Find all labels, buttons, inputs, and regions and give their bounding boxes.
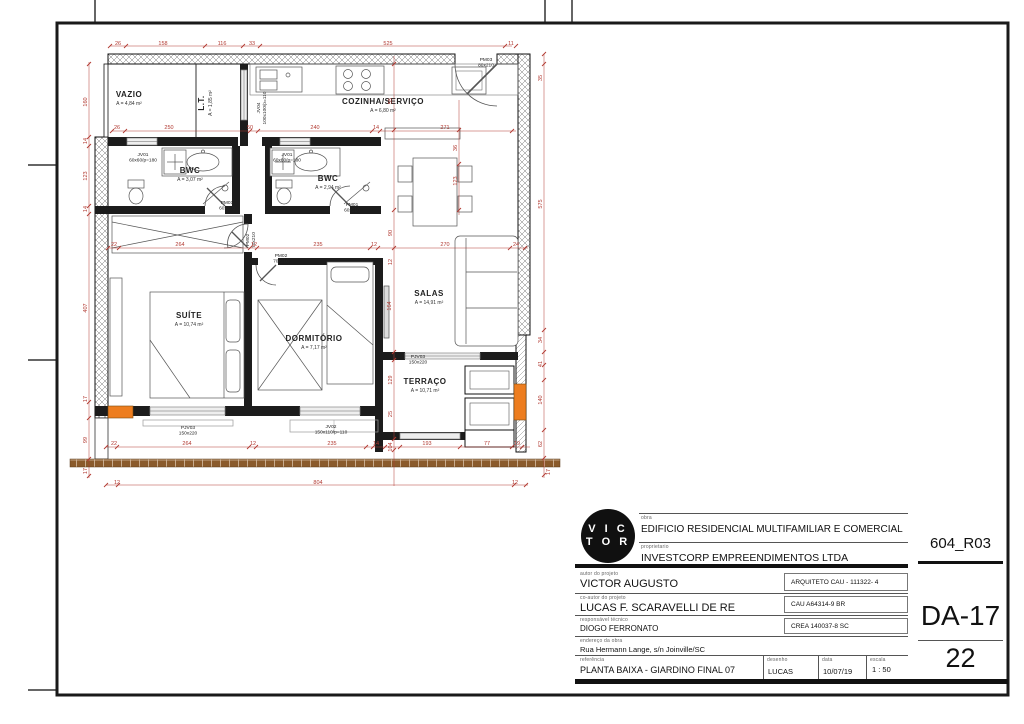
opening-tag-size: 150x220 xyxy=(409,360,428,366)
room-area: A = 7,17 m² xyxy=(301,345,327,351)
dining-table xyxy=(398,158,472,226)
resp-label: responsável técnico xyxy=(580,617,628,623)
dimension-label: 12 xyxy=(250,441,256,447)
room-area: A = 3,07 m² xyxy=(177,177,203,183)
autor-reg-cell: ARQUITETO CAU - 111322- 4 xyxy=(784,573,908,591)
referencia-label: referência xyxy=(580,657,604,663)
opening-tag-size: 60x60/p=180 xyxy=(273,158,301,164)
dimension-label: 14 xyxy=(373,441,379,447)
opening-tag: JV01 xyxy=(282,152,293,158)
opening-tag-size: 60x210 xyxy=(344,208,360,214)
divider xyxy=(575,636,908,637)
dimension-label: 22 xyxy=(111,242,117,248)
suite-bed xyxy=(150,292,244,398)
room-label: SUÍTE xyxy=(176,311,202,320)
opening-tag-size: 60x60/p=180 xyxy=(129,158,157,164)
opening-tag: PJV03 xyxy=(411,354,425,360)
dimension-label: 14 xyxy=(83,138,89,144)
referencia-value: PLANTA BAIXA - GIARDINO FINAL 07 xyxy=(580,665,735,675)
dimension-label: 50 xyxy=(247,125,253,131)
dimension-label: 90 xyxy=(388,230,394,236)
dimension-label: 140 xyxy=(538,395,544,404)
dimension-label: 116 xyxy=(218,41,227,47)
garden-brick-wall xyxy=(70,459,560,467)
dimension-label: 62 xyxy=(538,441,544,447)
opening-tag: JV04 xyxy=(256,102,262,113)
room-area: A = 4,84 m² xyxy=(116,101,142,107)
opening-tag: PM01 xyxy=(346,202,359,208)
dimension-label: 14 xyxy=(373,125,379,131)
room-area: A = 10,74 m² xyxy=(175,322,204,328)
divider xyxy=(639,513,908,514)
room-label: TERRAÇO xyxy=(403,377,446,386)
opening-tag: JV02 xyxy=(326,424,337,430)
kitchen-sink xyxy=(256,67,302,92)
room-area: A = 14,91 m² xyxy=(415,300,444,306)
dimension-label: 55 xyxy=(388,98,394,104)
desenho-value: LUCAS xyxy=(768,667,793,676)
dimension-label: 12 xyxy=(512,480,518,486)
room-label: DORMITÓRIO xyxy=(286,334,343,343)
opening-tag-size: 60x210 xyxy=(219,206,235,212)
room-label: SALAS xyxy=(414,289,444,298)
dimension-label: 12 xyxy=(251,242,257,248)
dimension-label: 575 xyxy=(538,199,544,208)
autor-value: VICTOR AUGUSTO xyxy=(580,578,678,590)
opening-tag: JV01 xyxy=(138,152,149,158)
vazio-edge-wall xyxy=(104,64,108,137)
endereco-label: endereço da obra xyxy=(580,638,622,644)
room-label: VAZIO xyxy=(116,90,142,99)
logo-line1: V I C xyxy=(581,523,635,536)
divider xyxy=(866,655,867,679)
dimension-label: 271 xyxy=(440,125,449,131)
coautor-value: LUCAS F. SCARAVELLI DE RE xyxy=(580,602,735,614)
room-area: A = 6,80 m² xyxy=(370,108,396,114)
divider xyxy=(918,640,1003,641)
room-label: BWC xyxy=(180,166,201,175)
sheet-number: 22 xyxy=(918,643,1003,674)
dimension-label: 104 xyxy=(388,442,394,451)
sofa xyxy=(455,236,518,346)
dimension-label: 17 xyxy=(83,468,89,474)
data-label: data xyxy=(822,657,833,663)
dimension-label: 17 xyxy=(546,469,552,475)
terrace-planters xyxy=(465,366,514,447)
opening-tag: PM03 xyxy=(480,57,493,63)
dimension-label: 12 xyxy=(388,259,394,265)
left-wall-lower xyxy=(95,418,108,459)
opening-tag: PM01 xyxy=(221,200,234,206)
dimension-label: 36 xyxy=(453,145,459,151)
dimension-label: 33 xyxy=(249,41,255,47)
room-label: L.T. xyxy=(197,95,206,110)
room-area: A = 10,71 m² xyxy=(411,388,440,394)
dimension-label: 14 xyxy=(83,206,89,212)
escala-label: escala xyxy=(870,657,886,663)
dimension-label: 35 xyxy=(538,75,544,81)
dimension-label: 24 xyxy=(513,242,519,248)
divider xyxy=(575,615,908,616)
data-value: 10/07/19 xyxy=(823,667,852,676)
opening-tag-size: 100x100/p=110 xyxy=(262,91,268,124)
victor-logo: V I C T O R xyxy=(581,509,635,563)
coautor-reg: CAU A64314-9 BR xyxy=(791,601,845,608)
thick-bar-bottom xyxy=(575,679,1008,684)
coautor-reg-cell: CAU A64314-9 BR xyxy=(784,596,908,613)
room-area: A = 1,85 m² xyxy=(208,90,214,116)
dimension-label: 12 xyxy=(371,242,377,248)
thick-bar xyxy=(575,564,908,568)
dimension-label: 41 xyxy=(538,361,544,367)
dimension-label: 164 xyxy=(387,301,393,310)
tv-panel xyxy=(384,286,389,338)
dimension-label: 525 xyxy=(383,41,392,47)
obra-label: obra xyxy=(641,515,652,521)
dimension-label: 240 xyxy=(310,125,319,131)
dimension-label: 264 xyxy=(182,441,191,447)
dimension-label: 99 xyxy=(83,437,89,443)
dimension-label: 12 xyxy=(114,480,120,486)
dimension-label: 129 xyxy=(388,375,394,384)
opening-tag-size: 70x210 xyxy=(273,259,289,265)
dimension-label: 34 xyxy=(538,337,544,343)
resp-value: DIOGO FERRONATO xyxy=(580,624,658,633)
opening-tag-size: 150x220 xyxy=(179,431,198,437)
dimension-label: 235 xyxy=(313,242,322,248)
room-area: A = 2,94 m² xyxy=(315,185,341,191)
autor-reg: ARQUITETO CAU - 111322- 4 xyxy=(791,579,878,586)
obra-value: EDIFICIO RESIDENCIAL MULTIFAMILIAR E COM… xyxy=(641,524,903,535)
sheet-code: DA-17 xyxy=(918,600,1003,632)
opening-tag-size: 80x210 xyxy=(478,63,494,69)
opening-tag-size: 150x110/p=110 xyxy=(315,430,348,436)
dimension-label: 270 xyxy=(440,242,449,248)
dimension-label: 160 xyxy=(83,97,89,106)
proprietario-value: INVESTCORP EMPREENDIMENTOS LTDA xyxy=(641,552,848,564)
dorm-bed xyxy=(327,262,373,384)
opening-tag: PJV03 xyxy=(181,425,195,431)
divider xyxy=(575,655,908,656)
divider xyxy=(639,542,908,543)
dimension-label: 193 xyxy=(422,441,431,447)
dimension-label: 158 xyxy=(158,41,167,47)
autor-label: autor do projeto xyxy=(580,571,618,577)
dimension-label: 235 xyxy=(327,441,336,447)
stove xyxy=(336,66,384,94)
divider xyxy=(575,593,908,594)
revision-code: 604_R03 xyxy=(918,535,1003,552)
title-block: V I C T O R obra EDIFICIO RESIDENCIAL MU… xyxy=(575,505,1008,689)
dimension-label: 123 xyxy=(453,176,459,185)
dimension-label: 22 xyxy=(111,441,117,447)
dimension-label: 407 xyxy=(83,303,89,312)
coautor-label: co-autor do projeto xyxy=(580,595,626,601)
dimension-label: 250 xyxy=(164,125,173,131)
dimension-label: 11 xyxy=(508,41,514,47)
room-label: BWC xyxy=(318,174,339,183)
dimension-label: 19 xyxy=(514,441,520,447)
dimension-label: 25 xyxy=(388,411,394,417)
resp-reg-cell: CREA 140037-8 SC xyxy=(784,618,908,634)
desenho-label: desenho xyxy=(767,657,788,663)
suite-wardrobe xyxy=(110,278,122,396)
divider xyxy=(818,655,819,679)
dimension-label: 264 xyxy=(175,242,184,248)
dimension-label: 26 xyxy=(115,41,121,47)
room-label: COZINHA/SERVIÇO xyxy=(342,97,424,106)
resp-reg: CREA 140037-8 SC xyxy=(791,623,849,630)
dimension-label: 77 xyxy=(484,441,490,447)
divider xyxy=(763,655,764,679)
drawing-sheet: VAZIOA = 4,84 m²L.T.A = 1,85 m²COZINHA/S… xyxy=(0,0,1024,724)
endereco-value: Rua Hermann Lange, s/n Joinville/SC xyxy=(580,645,705,654)
dimension-label: 123 xyxy=(83,171,89,180)
dimension-label: 804 xyxy=(313,480,322,486)
dimension-label: 17 xyxy=(83,396,89,402)
escala-value: 1 : 50 xyxy=(872,665,891,674)
thick-bar-right xyxy=(918,561,1003,564)
opening-tag: PM02 xyxy=(275,253,288,259)
proprietario-label: proprietario xyxy=(641,544,669,550)
dimension-label: 26 xyxy=(114,125,120,131)
logo-line2: T O R xyxy=(581,536,635,549)
